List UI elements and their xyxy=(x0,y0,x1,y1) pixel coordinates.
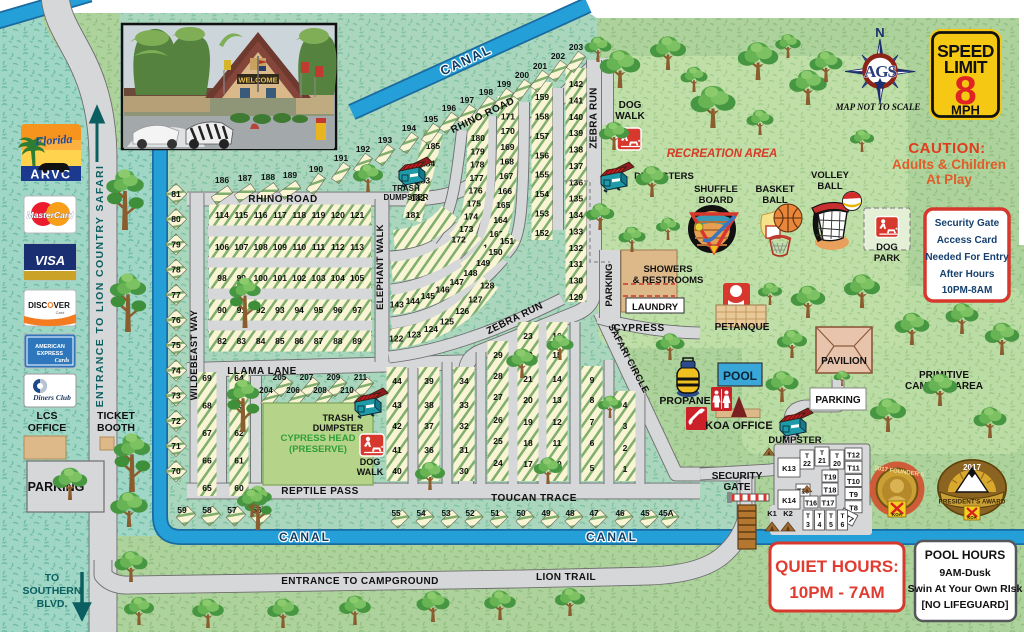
svg-text:199: 199 xyxy=(497,79,511,89)
svg-text:18: 18 xyxy=(523,438,533,448)
svg-text:4: 4 xyxy=(623,400,628,410)
svg-text:57: 57 xyxy=(227,505,237,515)
svg-text:LAUNDRY: LAUNDRY xyxy=(632,302,679,313)
svg-text:158: 158 xyxy=(535,111,549,121)
svg-text:Florida: Florida xyxy=(34,132,73,149)
svg-text:WALK: WALK xyxy=(615,111,645,122)
svg-text:10PM-8AM: 10PM-8AM xyxy=(942,285,993,296)
svg-text:113: 113 xyxy=(350,242,364,252)
svg-text:K2: K2 xyxy=(783,509,793,518)
svg-text:97: 97 xyxy=(352,305,362,315)
svg-text:PARKING: PARKING xyxy=(815,395,861,406)
svg-text:148: 148 xyxy=(463,268,477,278)
svg-text:45: 45 xyxy=(640,509,650,518)
svg-text:DOG: DOG xyxy=(619,100,642,111)
svg-text:71: 71 xyxy=(171,441,181,451)
svg-text:TICKET: TICKET xyxy=(97,410,136,422)
svg-text:151: 151 xyxy=(500,236,514,246)
svg-text:After Hours: After Hours xyxy=(939,269,994,280)
svg-text:198: 198 xyxy=(479,87,493,97)
svg-text:208: 208 xyxy=(313,386,327,395)
svg-text:10PM - 7AM: 10PM - 7AM xyxy=(789,583,884,602)
svg-text:TRASH: TRASH xyxy=(323,413,354,423)
svg-text:66: 66 xyxy=(202,456,212,466)
svg-text:170: 170 xyxy=(501,126,515,136)
svg-text:T16: T16 xyxy=(805,501,817,508)
svg-text:DOG: DOG xyxy=(876,242,898,253)
svg-text:136: 136 xyxy=(569,177,583,187)
svg-text:200: 200 xyxy=(515,70,529,80)
svg-text:127: 127 xyxy=(468,294,482,304)
svg-text:3: 3 xyxy=(806,522,810,529)
svg-text:MasterCard: MasterCard xyxy=(27,210,75,220)
svg-text:AMERICAN: AMERICAN xyxy=(35,344,65,350)
svg-text:191: 191 xyxy=(334,153,348,163)
svg-text:122: 122 xyxy=(389,333,403,343)
svg-text:169: 169 xyxy=(500,142,514,152)
svg-text:VOLLEY: VOLLEY xyxy=(811,170,850,181)
svg-text:AGS: AGS xyxy=(864,62,897,81)
svg-text:209: 209 xyxy=(327,373,341,382)
svg-text:109: 109 xyxy=(273,242,287,252)
svg-text:146: 146 xyxy=(435,285,449,295)
svg-text:17: 17 xyxy=(523,459,533,469)
svg-text:135: 135 xyxy=(569,194,583,204)
svg-text:103: 103 xyxy=(311,273,325,283)
svg-text:40: 40 xyxy=(392,466,402,476)
svg-text:BASKET: BASKET xyxy=(755,184,794,195)
svg-text:76: 76 xyxy=(171,315,181,325)
svg-text:DUMPSTER: DUMPSTER xyxy=(313,423,364,433)
svg-text:180: 180 xyxy=(471,133,485,143)
svg-text:105: 105 xyxy=(350,273,364,283)
svg-text:CYPRESS: CYPRESS xyxy=(613,323,664,334)
svg-text:68: 68 xyxy=(202,401,212,411)
svg-text:174: 174 xyxy=(464,212,478,222)
svg-text:Swin At Your Own RIsk: Swin At Your Own RIsk xyxy=(908,583,1023,595)
svg-text:69: 69 xyxy=(202,373,212,383)
svg-text:TOUCAN TRACE: TOUCAN TRACE xyxy=(491,493,577,504)
svg-text:100: 100 xyxy=(254,273,268,283)
svg-text:43: 43 xyxy=(392,400,402,410)
svg-text:PROPANE: PROPANE xyxy=(659,395,710,407)
svg-text:131: 131 xyxy=(569,259,583,269)
svg-text:110: 110 xyxy=(292,242,306,252)
svg-text:T17: T17 xyxy=(822,499,835,508)
svg-text:60: 60 xyxy=(234,483,244,493)
svg-text:172: 172 xyxy=(452,235,466,245)
svg-text:102: 102 xyxy=(292,273,306,283)
svg-text:SHOWERS: SHOWERS xyxy=(643,264,692,275)
svg-text:PARKING: PARKING xyxy=(604,263,615,306)
svg-text:165: 165 xyxy=(496,200,510,210)
svg-text:32: 32 xyxy=(459,421,469,431)
svg-text:ENTRANCE TO LION COUNTRY SAFAR: ENTRANCE TO LION COUNTRY SAFARI xyxy=(94,165,106,408)
svg-text:124: 124 xyxy=(424,324,438,334)
svg-text:Security Gate: Security Gate xyxy=(935,218,1000,229)
svg-text:24: 24 xyxy=(493,458,503,468)
svg-text:T: T xyxy=(841,513,845,520)
svg-text:93: 93 xyxy=(275,305,285,315)
svg-text:BOARD: BOARD xyxy=(699,195,734,206)
svg-text:DOG: DOG xyxy=(360,457,381,467)
svg-text:OFFICE: OFFICE xyxy=(28,422,67,434)
svg-text:49: 49 xyxy=(541,509,551,518)
svg-text:Card: Card xyxy=(56,310,65,315)
svg-text:SECURITY: SECURITY xyxy=(712,471,763,482)
svg-text:74: 74 xyxy=(171,365,181,375)
svg-text:TO: TO xyxy=(45,572,59,584)
svg-text:48: 48 xyxy=(565,509,575,518)
svg-text:[NO LIFEGUARD]: [NO LIFEGUARD] xyxy=(922,599,1009,611)
svg-text:203: 203 xyxy=(569,42,583,52)
svg-text:31: 31 xyxy=(459,445,469,455)
svg-text:55: 55 xyxy=(391,509,401,518)
svg-text:T18: T18 xyxy=(824,486,837,495)
svg-text:21: 21 xyxy=(818,458,826,465)
svg-text:75: 75 xyxy=(171,340,181,350)
svg-text:79: 79 xyxy=(171,239,181,249)
svg-text:12: 12 xyxy=(552,417,562,427)
svg-text:MAP NOT TO SCALE: MAP NOT TO SCALE xyxy=(835,102,921,112)
svg-text:59: 59 xyxy=(177,505,187,515)
svg-text:141: 141 xyxy=(569,95,583,105)
svg-text:Needed For Entry: Needed For Entry xyxy=(925,252,1009,263)
svg-text:13: 13 xyxy=(552,395,562,405)
svg-text:153: 153 xyxy=(535,209,549,219)
svg-text:53: 53 xyxy=(441,509,451,518)
svg-text:5: 5 xyxy=(590,463,595,473)
svg-text:188: 188 xyxy=(261,172,275,182)
svg-text:Access Card: Access Card xyxy=(937,235,998,246)
svg-text:CANAL: CANAL xyxy=(279,530,331,544)
svg-text:117: 117 xyxy=(273,210,287,220)
svg-text:9AM-Dusk: 9AM-Dusk xyxy=(939,567,991,579)
svg-text:140: 140 xyxy=(569,112,583,122)
svg-text:186: 186 xyxy=(215,175,229,185)
svg-text:(PRESERVE): (PRESERVE) xyxy=(289,444,347,455)
svg-text:& RESTROOMS: & RESTROOMS xyxy=(633,275,704,286)
svg-text:T: T xyxy=(805,453,809,460)
svg-text:T: T xyxy=(818,513,822,520)
svg-text:101: 101 xyxy=(273,273,287,283)
svg-text:14: 14 xyxy=(552,374,562,384)
svg-text:139: 139 xyxy=(569,128,583,138)
svg-text:126: 126 xyxy=(455,306,469,316)
svg-text:T: T xyxy=(820,450,824,457)
svg-text:T: T xyxy=(835,453,839,460)
svg-text:85: 85 xyxy=(275,336,285,346)
svg-text:6: 6 xyxy=(590,438,595,448)
svg-text:154: 154 xyxy=(535,189,549,199)
svg-text:47: 47 xyxy=(589,509,599,518)
svg-text:BOOTH: BOOTH xyxy=(97,422,135,434)
svg-text:173: 173 xyxy=(459,224,473,234)
svg-text:67: 67 xyxy=(202,428,212,438)
svg-text:CANAL: CANAL xyxy=(586,530,638,544)
svg-text:T12: T12 xyxy=(847,451,860,460)
svg-text:134: 134 xyxy=(569,210,583,220)
svg-text:119: 119 xyxy=(312,210,326,220)
svg-text:25: 25 xyxy=(493,436,503,446)
svg-text:Diners Club: Diners Club xyxy=(32,393,71,402)
svg-text:44: 44 xyxy=(392,376,402,386)
svg-text:PETANQUE: PETANQUE xyxy=(715,322,770,333)
svg-text:T8: T8 xyxy=(849,503,858,512)
svg-text:33: 33 xyxy=(459,400,469,410)
svg-text:125: 125 xyxy=(440,316,454,326)
svg-text:RHINO ROAD: RHINO ROAD xyxy=(248,194,317,205)
svg-text:EXPRESS: EXPRESS xyxy=(37,351,63,357)
svg-text:52: 52 xyxy=(465,509,475,518)
svg-text:58: 58 xyxy=(202,505,212,515)
svg-text:190: 190 xyxy=(309,164,323,174)
svg-text:WALK: WALK xyxy=(357,467,384,477)
svg-text:REPTILE PASS: REPTILE PASS xyxy=(281,486,359,497)
svg-text:DISCOVER: DISCOVER xyxy=(28,301,70,310)
svg-text:POOL HOURS: POOL HOURS xyxy=(925,548,1005,562)
svg-text:149: 149 xyxy=(476,258,490,268)
svg-text:138: 138 xyxy=(569,145,583,155)
svg-text:LLAMA LANE: LLAMA LANE xyxy=(227,366,297,377)
svg-text:87: 87 xyxy=(314,336,324,346)
svg-text:45A: 45A xyxy=(658,509,673,518)
svg-text:181: 181 xyxy=(406,210,420,220)
svg-text:150: 150 xyxy=(488,247,502,257)
svg-text:98: 98 xyxy=(217,273,227,283)
svg-text:TRASH: TRASH xyxy=(392,184,420,193)
svg-text:23: 23 xyxy=(523,331,533,341)
svg-text:179: 179 xyxy=(471,147,485,157)
svg-text:86: 86 xyxy=(294,336,304,346)
svg-text:178: 178 xyxy=(470,160,484,170)
svg-text:PAVILION: PAVILION xyxy=(821,356,867,367)
svg-text:145: 145 xyxy=(421,291,435,301)
svg-text:ENTRANCE TO CAMPGROUND: ENTRANCE TO CAMPGROUND xyxy=(281,576,439,587)
svg-text:T: T xyxy=(829,513,833,520)
svg-text:95: 95 xyxy=(314,305,324,315)
svg-text:133: 133 xyxy=(569,226,583,236)
svg-text:72: 72 xyxy=(171,416,181,426)
svg-text:T19: T19 xyxy=(824,473,837,482)
svg-text:KOA: KOA xyxy=(967,515,976,520)
svg-text:155: 155 xyxy=(535,170,549,180)
svg-text:189: 189 xyxy=(283,170,297,180)
svg-text:LION TRAIL: LION TRAIL xyxy=(536,572,596,583)
svg-text:41: 41 xyxy=(392,445,402,455)
svg-text:78: 78 xyxy=(171,265,181,275)
svg-text:167: 167 xyxy=(499,171,513,181)
svg-text:WILDEBEAST WAY: WILDEBEAST WAY xyxy=(189,309,200,400)
svg-text:8: 8 xyxy=(590,395,595,405)
svg-text:142: 142 xyxy=(569,79,583,89)
svg-text:21: 21 xyxy=(523,374,533,384)
svg-text:27: 27 xyxy=(493,392,503,402)
svg-text:PARK: PARK xyxy=(874,253,900,264)
svg-text:128: 128 xyxy=(480,281,494,291)
svg-text:2: 2 xyxy=(623,443,628,453)
svg-text:N: N xyxy=(875,25,884,40)
svg-text:1: 1 xyxy=(623,464,628,474)
svg-text:T11: T11 xyxy=(847,464,860,473)
svg-text:11: 11 xyxy=(553,438,562,448)
svg-text:T9: T9 xyxy=(849,490,858,499)
svg-text:143: 143 xyxy=(390,299,404,309)
svg-text:120: 120 xyxy=(331,210,345,220)
svg-text:168: 168 xyxy=(500,156,514,166)
svg-text:51: 51 xyxy=(490,509,500,518)
svg-text:83: 83 xyxy=(237,336,247,346)
svg-text:K1: K1 xyxy=(767,509,777,518)
svg-text:177: 177 xyxy=(469,173,483,183)
svg-text:50: 50 xyxy=(516,509,526,518)
svg-text:147: 147 xyxy=(450,277,464,287)
svg-text:156: 156 xyxy=(535,150,549,160)
svg-text:171: 171 xyxy=(501,112,515,122)
svg-text:KOA: KOA xyxy=(892,512,903,517)
svg-text:20: 20 xyxy=(523,395,533,405)
svg-text:26: 26 xyxy=(493,415,503,425)
svg-text:132: 132 xyxy=(569,243,583,253)
svg-text:82: 82 xyxy=(217,336,227,346)
svg-text:70: 70 xyxy=(171,466,181,476)
svg-text:193: 193 xyxy=(378,135,392,145)
svg-text:176: 176 xyxy=(468,186,482,196)
svg-text:GATE: GATE xyxy=(723,482,750,493)
svg-text:116: 116 xyxy=(254,210,268,220)
svg-text:5: 5 xyxy=(829,522,833,529)
svg-text:137: 137 xyxy=(569,161,583,171)
svg-text:At Play: At Play xyxy=(926,172,972,187)
svg-text:28: 28 xyxy=(493,371,503,381)
svg-text:SHUFFLE: SHUFFLE xyxy=(694,184,738,195)
svg-text:3: 3 xyxy=(623,421,628,431)
svg-text:42: 42 xyxy=(392,421,402,431)
svg-text:Adults & Children: Adults & Children xyxy=(892,157,1006,172)
svg-text:123: 123 xyxy=(407,330,421,340)
svg-text:POOL: POOL xyxy=(723,369,757,383)
svg-text:20: 20 xyxy=(833,461,841,468)
svg-text:204: 204 xyxy=(259,386,273,395)
svg-text:SOUTHERN: SOUTHERN xyxy=(23,585,82,597)
svg-text:111: 111 xyxy=(312,242,326,252)
svg-text:CYPRESS HEAD: CYPRESS HEAD xyxy=(281,433,356,444)
svg-text:BLVD.: BLVD. xyxy=(37,598,68,610)
svg-text:164: 164 xyxy=(493,215,507,225)
svg-text:34: 34 xyxy=(459,376,469,386)
svg-text:104: 104 xyxy=(331,273,345,283)
svg-text:65: 65 xyxy=(202,483,212,493)
svg-text:159: 159 xyxy=(535,92,549,102)
svg-text:108: 108 xyxy=(254,242,268,252)
svg-text:157: 157 xyxy=(535,131,549,141)
svg-text:30: 30 xyxy=(459,466,469,476)
svg-text:61: 61 xyxy=(234,456,244,466)
svg-text:194: 194 xyxy=(402,123,416,133)
svg-text:106: 106 xyxy=(215,242,229,252)
svg-text:4: 4 xyxy=(818,522,822,529)
svg-text:118: 118 xyxy=(292,210,306,220)
svg-text:211: 211 xyxy=(354,373,368,382)
svg-text:196: 196 xyxy=(442,103,456,113)
svg-text:210: 210 xyxy=(340,386,354,395)
svg-text:175: 175 xyxy=(467,199,481,209)
svg-text:46: 46 xyxy=(615,509,625,518)
svg-text:19: 19 xyxy=(523,417,533,427)
svg-text:80: 80 xyxy=(171,214,181,224)
svg-text:54: 54 xyxy=(416,509,426,518)
svg-text:192: 192 xyxy=(356,144,370,154)
svg-text:VISA: VISA xyxy=(35,253,65,268)
svg-text:37: 37 xyxy=(424,421,434,431)
svg-text:107: 107 xyxy=(234,242,248,252)
svg-text:197: 197 xyxy=(460,95,474,105)
svg-text:CAUTION:: CAUTION: xyxy=(908,140,985,157)
svg-text:96: 96 xyxy=(333,305,343,315)
svg-text:112: 112 xyxy=(331,242,345,252)
svg-text:K13: K13 xyxy=(782,464,796,473)
svg-text:187: 187 xyxy=(238,173,252,183)
svg-text:T10: T10 xyxy=(847,477,860,486)
svg-text:9: 9 xyxy=(590,375,595,385)
svg-text:39: 39 xyxy=(424,376,434,386)
svg-text:152: 152 xyxy=(535,228,549,238)
svg-text:ZEBRA RUN: ZEBRA RUN xyxy=(589,87,600,148)
svg-text:7: 7 xyxy=(590,417,595,427)
svg-text:88: 88 xyxy=(333,336,343,346)
svg-text:ELEPHANT WALK: ELEPHANT WALK xyxy=(375,224,386,310)
svg-text:DUMPSTER: DUMPSTER xyxy=(384,193,429,202)
svg-text:Cards: Cards xyxy=(55,358,70,364)
svg-text:QUIET HOURS:: QUIET HOURS: xyxy=(775,557,899,576)
svg-text:6: 6 xyxy=(841,522,845,529)
svg-text:166: 166 xyxy=(498,186,512,196)
svg-text:89: 89 xyxy=(352,336,362,346)
svg-text:207: 207 xyxy=(300,373,314,382)
svg-text:144: 144 xyxy=(406,296,420,306)
svg-text:195: 195 xyxy=(424,114,438,124)
svg-text:206: 206 xyxy=(286,386,300,395)
svg-text:115: 115 xyxy=(234,210,248,220)
svg-text:202: 202 xyxy=(551,51,565,61)
svg-text:36: 36 xyxy=(424,445,434,455)
svg-text:73: 73 xyxy=(171,391,181,401)
svg-text:114: 114 xyxy=(215,210,229,220)
svg-text:PRESIDENT'S AWARD: PRESIDENT'S AWARD xyxy=(939,499,1006,506)
svg-text:29: 29 xyxy=(493,350,503,360)
svg-text:77: 77 xyxy=(171,290,181,300)
svg-text:121: 121 xyxy=(350,210,364,220)
svg-text:MPH: MPH xyxy=(951,103,980,118)
svg-text:KOA OFFICE: KOA OFFICE xyxy=(705,420,772,432)
svg-text:38: 38 xyxy=(424,400,434,410)
svg-text:RECREATION AREA: RECREATION AREA xyxy=(667,148,778,160)
svg-text:201: 201 xyxy=(533,61,547,71)
svg-text:81: 81 xyxy=(171,189,181,199)
svg-text:22: 22 xyxy=(803,461,811,468)
svg-text:94: 94 xyxy=(294,305,304,315)
svg-text:T: T xyxy=(806,513,810,520)
svg-text:BALL: BALL xyxy=(817,181,843,192)
svg-text:LCS: LCS xyxy=(37,410,58,422)
svg-text:130: 130 xyxy=(569,276,583,286)
svg-text:90: 90 xyxy=(217,305,227,315)
svg-text:129: 129 xyxy=(569,292,583,302)
svg-text:84: 84 xyxy=(256,336,266,346)
svg-text:K14: K14 xyxy=(782,496,797,505)
